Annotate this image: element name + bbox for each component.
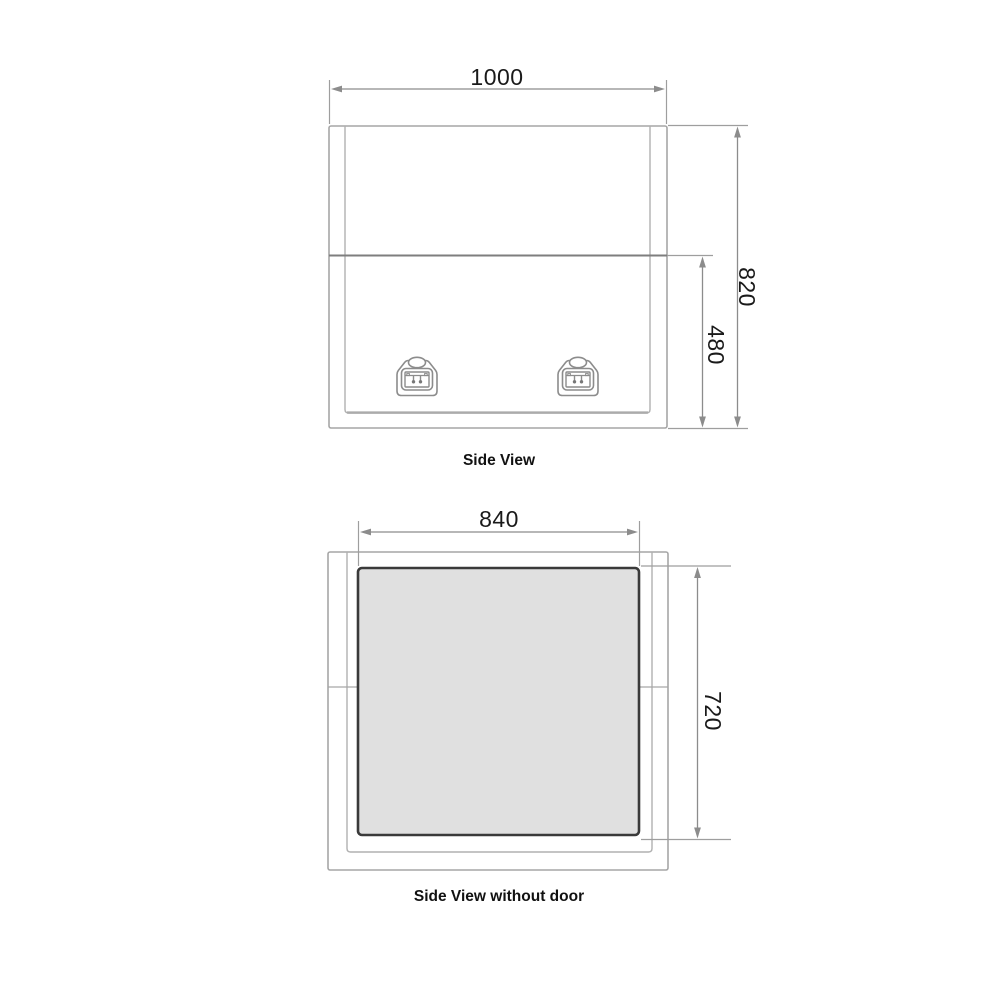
door-opening-panel	[358, 568, 639, 835]
dimension-label-door-480: 480	[704, 313, 728, 377]
dimension-label-opening-720: 720	[701, 679, 725, 743]
arrow-down-icon	[694, 828, 701, 839]
arrow-right-icon	[627, 529, 638, 536]
arrow-left-icon	[331, 86, 342, 93]
arrow-up-icon	[694, 567, 701, 578]
arrow-up-icon	[734, 127, 741, 138]
side-view-inner-walls	[345, 126, 650, 413]
side-view-outer-body	[329, 126, 667, 428]
paddle-latch-icon	[397, 357, 437, 395]
arrow-down-icon	[734, 417, 741, 428]
side-view-without-door-caption: Side View without door	[349, 887, 649, 907]
dimension-label-opening-840: 840	[459, 507, 539, 531]
arrow-left-icon	[360, 529, 371, 536]
arrow-down-icon	[699, 417, 706, 428]
arrow-up-icon	[699, 257, 706, 268]
side-view-without-door-diagram	[328, 521, 731, 870]
dimension-label-height-820: 820	[735, 255, 759, 319]
side-view-caption: Side View	[349, 451, 649, 471]
dimension-label-width-1000: 1000	[457, 65, 537, 89]
paddle-latch-icon	[558, 357, 598, 395]
arrow-right-icon	[654, 86, 665, 93]
side-view-diagram	[329, 80, 748, 429]
technical-drawing-canvas: 1000 820 480 Side View 840 720 Side View…	[0, 0, 1000, 1000]
drawing-linework	[0, 0, 1000, 1000]
